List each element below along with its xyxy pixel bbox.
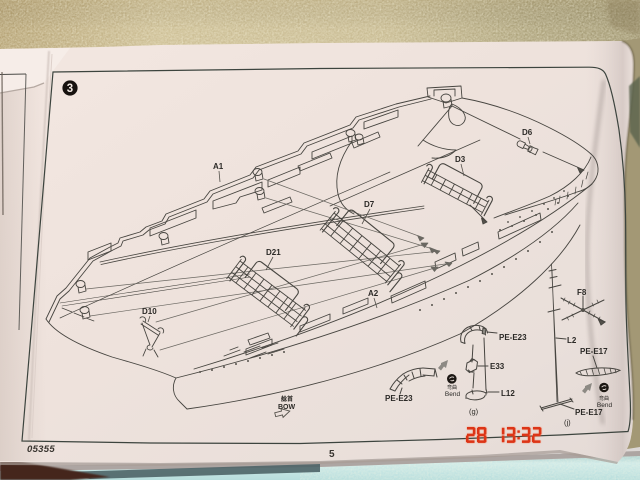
svg-text:弯曲: 弯曲 — [599, 395, 609, 402]
svg-text:PE-E23: PE-E23 — [385, 394, 413, 403]
svg-text:E33: E33 — [490, 362, 505, 371]
svg-text:(g): (g) — [469, 407, 479, 416]
svg-text:D7: D7 — [364, 200, 375, 209]
svg-text:弯曲: 弯曲 — [447, 384, 457, 391]
svg-text:L12: L12 — [501, 389, 515, 398]
svg-text:PE-E23: PE-E23 — [499, 333, 527, 342]
svg-text:D21: D21 — [266, 248, 281, 257]
svg-text:L2: L2 — [567, 336, 577, 345]
svg-text:D10: D10 — [142, 307, 157, 316]
svg-text:3: 3 — [67, 83, 73, 95]
svg-text:PE-E17: PE-E17 — [580, 347, 608, 356]
svg-text:(j): (j) — [564, 418, 571, 427]
svg-text:05355: 05355 — [27, 444, 55, 455]
svg-text:A2: A2 — [368, 289, 379, 298]
svg-text:Bend: Bend — [597, 402, 613, 409]
svg-text:艌首: 艌首 — [281, 395, 293, 403]
svg-text:PE-E17: PE-E17 — [575, 408, 603, 417]
svg-text:5: 5 — [329, 449, 335, 460]
svg-text:A1: A1 — [213, 162, 224, 171]
svg-text:D6: D6 — [522, 128, 533, 137]
svg-text:Bend: Bend — [445, 391, 461, 398]
svg-text:F8: F8 — [577, 288, 587, 297]
svg-text:D3: D3 — [455, 155, 466, 164]
